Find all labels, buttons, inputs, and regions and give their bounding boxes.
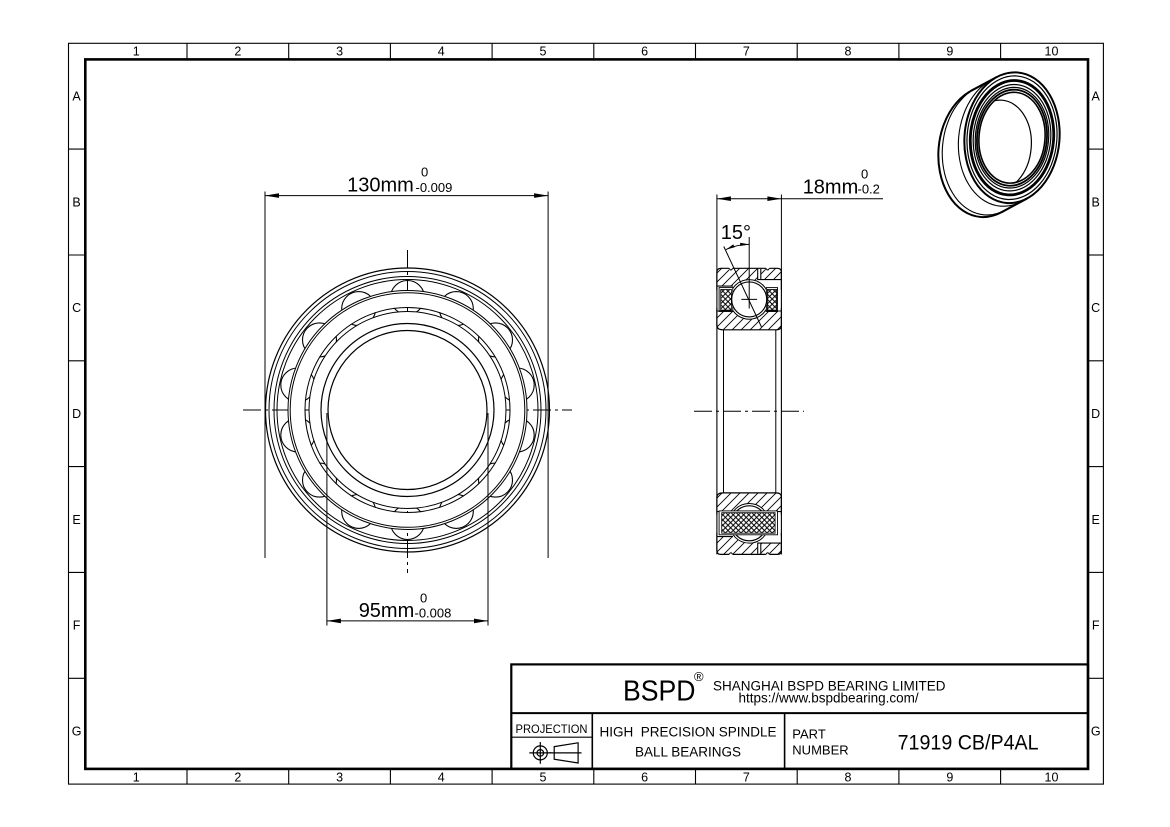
svg-text:7: 7	[743, 771, 750, 785]
svg-text:https://www.bspdbearing.com/: https://www.bspdbearing.com/	[739, 691, 919, 706]
svg-text:G: G	[1091, 725, 1101, 739]
svg-text:E: E	[72, 513, 80, 527]
svg-text:2: 2	[234, 45, 241, 59]
svg-text:F: F	[1092, 619, 1100, 633]
svg-text:A: A	[72, 90, 81, 104]
svg-text:F: F	[73, 619, 81, 633]
svg-text:E: E	[1092, 513, 1100, 527]
svg-text:4: 4	[438, 771, 445, 785]
svg-text:®: ®	[694, 669, 704, 684]
svg-text:BALL BEARINGS: BALL BEARINGS	[635, 744, 741, 759]
svg-text:5: 5	[540, 771, 547, 785]
svg-text:8: 8	[845, 45, 852, 59]
svg-text:10: 10	[1045, 45, 1059, 59]
svg-text:D: D	[1091, 407, 1100, 421]
svg-text:10: 10	[1045, 771, 1059, 785]
svg-text:5: 5	[540, 45, 547, 59]
svg-text:0: 0	[420, 591, 427, 606]
svg-text:-0.2: -0.2	[858, 182, 880, 197]
svg-text:6: 6	[641, 771, 648, 785]
svg-text:PART: PART	[792, 727, 826, 742]
svg-text:-0.009: -0.009	[416, 180, 453, 195]
svg-text:C: C	[1091, 301, 1100, 315]
svg-text:18mm: 18mm	[803, 177, 859, 199]
svg-text:130mm: 130mm	[347, 175, 414, 197]
svg-text:0: 0	[861, 167, 868, 182]
svg-text:-0.008: -0.008	[415, 606, 452, 621]
svg-text:7: 7	[743, 45, 750, 59]
svg-text:G: G	[72, 725, 82, 739]
svg-text:C: C	[72, 301, 81, 315]
svg-text:9: 9	[946, 45, 953, 59]
svg-text:8: 8	[845, 771, 852, 785]
svg-text:3: 3	[336, 45, 343, 59]
svg-text:6: 6	[641, 45, 648, 59]
svg-text:15°: 15°	[721, 222, 751, 244]
svg-text:0: 0	[421, 165, 428, 180]
svg-text:PROJECTION: PROJECTION	[516, 722, 588, 736]
svg-text:2: 2	[234, 771, 241, 785]
svg-text:3: 3	[336, 771, 343, 785]
svg-text:HIGH PRECISION SPINDLE: HIGH PRECISION SPINDLE	[599, 725, 776, 740]
svg-text:95mm: 95mm	[359, 600, 415, 622]
svg-text:1: 1	[133, 45, 140, 59]
svg-text:1: 1	[133, 771, 140, 785]
svg-text:D: D	[72, 407, 81, 421]
svg-text:A: A	[1092, 90, 1101, 104]
svg-text:BSPD: BSPD	[623, 676, 696, 708]
svg-text:NUMBER: NUMBER	[792, 743, 848, 758]
svg-text:B: B	[72, 195, 80, 209]
svg-text:B: B	[1092, 195, 1100, 209]
svg-text:4: 4	[438, 45, 445, 59]
svg-text:71919 CB/P4AL: 71919 CB/P4AL	[898, 732, 1039, 755]
svg-text:9: 9	[946, 771, 953, 785]
